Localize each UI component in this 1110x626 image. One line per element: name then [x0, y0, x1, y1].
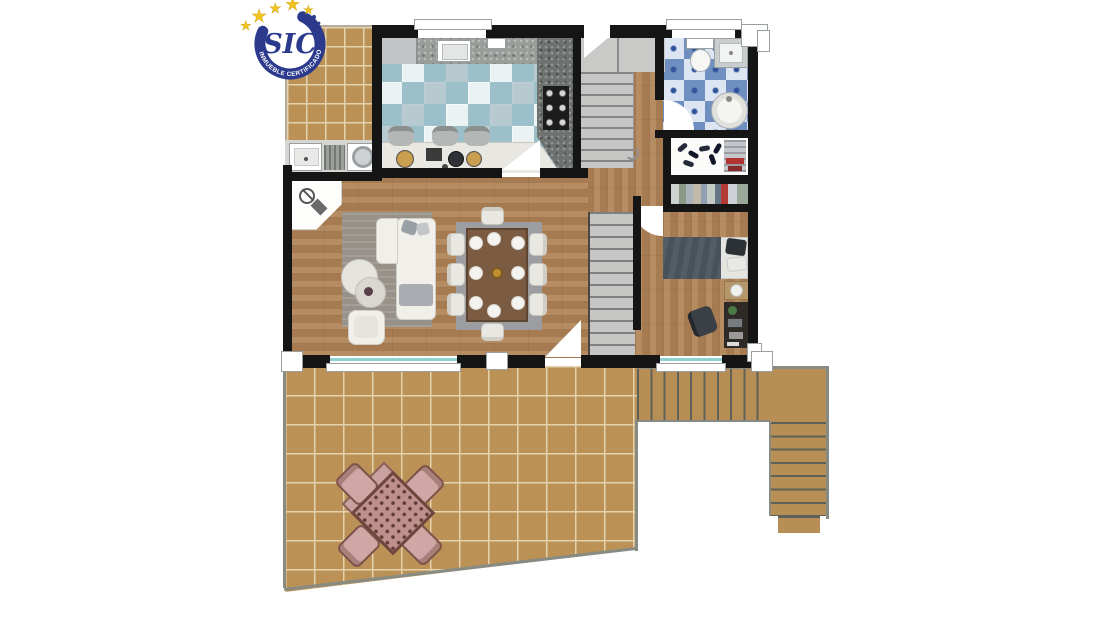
stair-rail-arc [625, 146, 639, 160]
desk-plant [728, 306, 737, 315]
window-sill-bottom-living [326, 363, 461, 372]
wall-bottom-c [581, 355, 660, 368]
wall-kitchen-bottom-a [372, 168, 502, 178]
exterior-stairs-last-step [778, 516, 820, 533]
desk-laptop [727, 318, 743, 328]
badge-dot-1 [312, 15, 316, 19]
bar-plate-dark [448, 151, 464, 167]
bar-stool-2 [432, 126, 458, 146]
exterior-stairs-edge-right [826, 366, 829, 519]
plate-5 [511, 266, 525, 280]
dining-chair-bottom [481, 323, 504, 341]
coffee-table-decor [364, 287, 373, 296]
wall-hall-left [573, 38, 581, 168]
nightstand-lamp [730, 284, 743, 297]
badge-star-2: ★ [251, 6, 267, 26]
floorplan-canvas: INMUEBLE CERTIFICADO SIC ★ ★ ★ ★ ★ [0, 0, 1110, 626]
window-sill-top-kitchen [414, 19, 492, 30]
bar-stool-3 [464, 126, 490, 146]
dining-chair-r3 [529, 293, 547, 316]
bed-pillow-white [726, 256, 747, 272]
badge-star-1: ★ [240, 18, 252, 33]
window-sill-bottom-bedroom [656, 363, 726, 372]
desk-papers [727, 342, 739, 346]
bathtub-faucet [726, 96, 732, 102]
toilet-tank [686, 38, 714, 49]
wall-top-b [486, 25, 584, 38]
sofa-blanket [399, 284, 433, 306]
closet-red-item-1 [726, 158, 744, 164]
wall-stairs-right [633, 196, 641, 330]
wall-kitchen-bottom-b [540, 168, 588, 178]
badge-star-5: ★ [303, 3, 314, 17]
dining-chair-l1 [447, 233, 465, 256]
closet-red-item-2 [728, 166, 742, 171]
laundry-mat [324, 145, 345, 170]
terrace-edge-left [283, 366, 286, 588]
sofa-chaise [376, 218, 398, 264]
pillar-bottom-left [281, 351, 303, 372]
exterior-stairs-lower-run [770, 422, 828, 516]
main-staircase [588, 212, 635, 357]
dining-chair-top [481, 207, 504, 225]
wall-laundry-bottom [283, 172, 382, 181]
dining-chair-r1 [529, 233, 547, 256]
armchair-cushion [354, 316, 378, 338]
plate-1 [469, 236, 483, 250]
badge-title: SIC [263, 29, 317, 60]
plate-7 [487, 232, 501, 246]
plate-3 [469, 296, 483, 310]
pillar-bottom-right [751, 351, 773, 372]
exterior-stairs-landing [770, 368, 828, 422]
terrace-edge-right [635, 420, 638, 551]
bed-duvet [663, 237, 721, 279]
badge-dot-2 [318, 22, 321, 25]
window-sill-top-bathroom [666, 19, 742, 30]
bed-pillow-dark [725, 238, 747, 257]
throw-pillow-2 [416, 222, 430, 236]
wall-closet-bottom [663, 204, 757, 212]
dining-chair-l3 [447, 293, 465, 316]
plate-4 [511, 236, 525, 250]
exterior-stairs-edge-inner [637, 420, 770, 422]
stove-cooktop [543, 86, 569, 130]
plate-2 [469, 266, 483, 280]
plate-6 [511, 296, 525, 310]
desk-tablet [729, 332, 743, 339]
window-sill-right-top [757, 30, 770, 52]
dining-chair-l2 [447, 263, 465, 286]
wall-bathroom-bottom [655, 130, 757, 138]
kitchen-sink-basin [442, 44, 468, 60]
certification-badge: INMUEBLE CERTIFICADO SIC ★ ★ ★ ★ ★ [236, 0, 348, 84]
wall-left-outer [283, 165, 292, 368]
wardrobe-clothes [671, 184, 748, 204]
plate-8 [487, 304, 501, 318]
badge-star-4: ★ [285, 0, 300, 14]
exterior-stairs-upper-run [637, 368, 770, 422]
pillar-bottom-mid [486, 352, 508, 370]
exterior-stairs-edge-inner2 [769, 422, 771, 516]
bar-plate-gold-1 [396, 150, 414, 168]
window-marker-kitchen [487, 38, 506, 49]
shower-drain [729, 51, 733, 55]
bar-tray [426, 148, 442, 161]
badge-star-3: ★ [269, 0, 282, 16]
dining-centerpiece [491, 267, 503, 279]
toilet-bowl [690, 49, 711, 72]
washing-machine-drum [352, 146, 374, 168]
wall-closet-mid [663, 175, 757, 184]
wall-bathroom-left [655, 25, 664, 100]
bar-stool-1 [388, 126, 414, 146]
refrigerator [380, 38, 418, 64]
dining-chair-r2 [529, 263, 547, 286]
utility-sink-drain [304, 157, 308, 161]
wall-right-outer [748, 25, 758, 368]
bar-plate-gold-2 [466, 151, 482, 167]
wall-kitchen-left [372, 25, 382, 178]
